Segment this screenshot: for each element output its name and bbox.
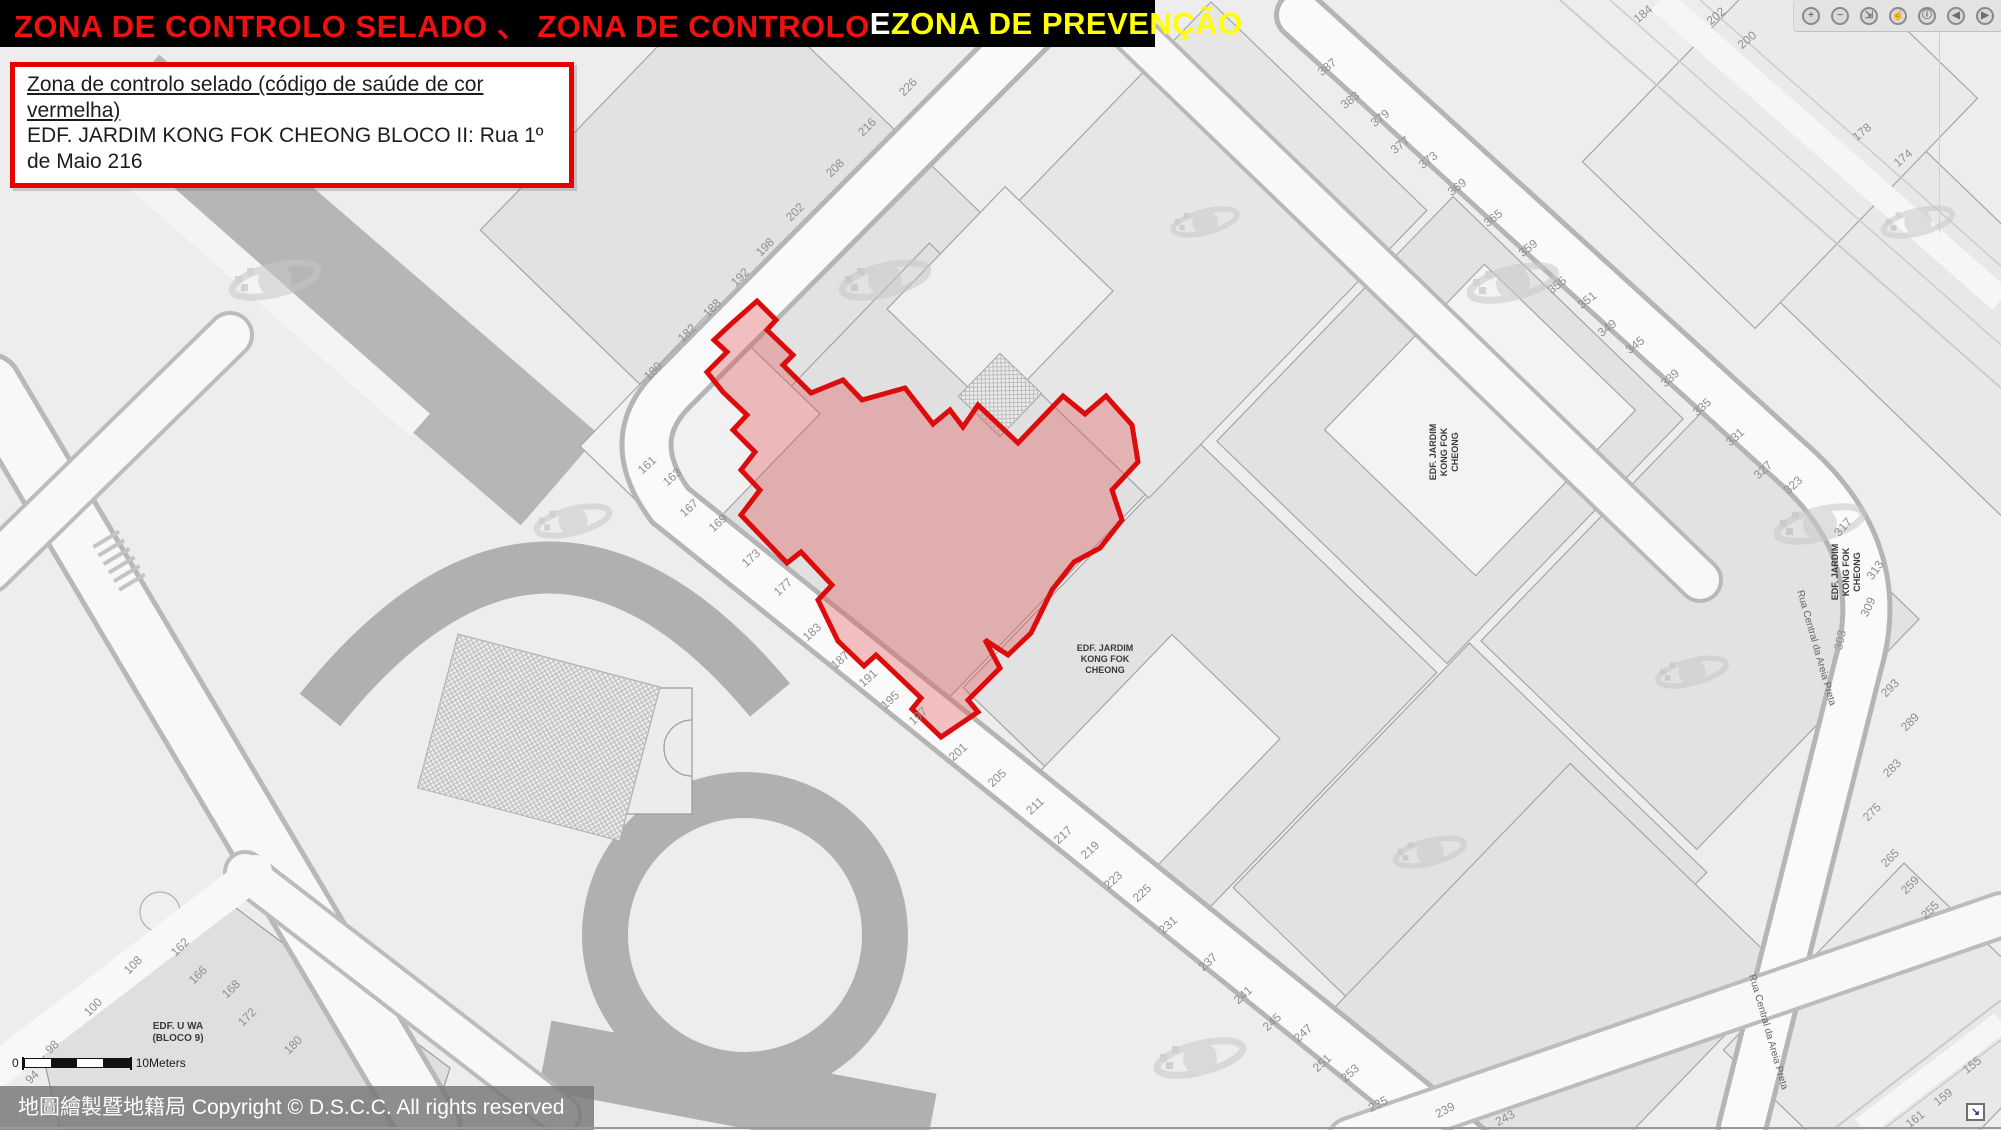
copyright-bar: 地圖繪製暨地籍局 Copyright © D.S.C.C. All rights… [0, 1086, 594, 1130]
map-sheet-boundary [1939, 33, 1940, 233]
copyright-text: 地圖繪製暨地籍局 Copyright © D.S.C.C. All rights… [18, 1096, 564, 1119]
banner-text-segment: E [870, 6, 891, 42]
scale-bar-segments [24, 1058, 130, 1068]
legend-title: Zona de controlo selado (código de saúde… [27, 73, 483, 122]
map-toolbar: +−⇲☝ⓘ◀▶ [1793, 0, 2001, 32]
forward-button[interactable]: ▶ [1976, 7, 1994, 25]
banner-text-segment: ZONA DE CONTROLO SELADO 、 ZONA DE CONTRO… [14, 1, 870, 46]
banner-text-segment: ZONA DE PREVENÇÃO [891, 6, 1243, 42]
scale-units-label: 10Meters [136, 1056, 186, 1070]
scale-zero-label: 0 [12, 1056, 19, 1070]
scale-segment [25, 1059, 51, 1067]
scale-segment [77, 1059, 103, 1067]
zoom-in-button[interactable]: + [1802, 7, 1820, 25]
map-frame-bottom [0, 1127, 2001, 1129]
pan-button[interactable]: ☝ [1889, 7, 1907, 25]
back-button[interactable]: ◀ [1947, 7, 1965, 25]
zone-title-banner: ZONA DE CONTROLO SELADO 、 ZONA DE CONTRO… [0, 0, 1155, 47]
identify-button[interactable]: ⓘ [1918, 7, 1936, 25]
full-extent-button[interactable]: ⇲ [1860, 7, 1878, 25]
scale-tick [130, 1057, 132, 1070]
zoom-out-button[interactable]: − [1831, 7, 1849, 25]
map-viewer: 2262162082021981921881821801611631671691… [0, 0, 2001, 1130]
legend-body: EDF. JARDIM KONG FOK CHEONG BLOCO II: Ru… [27, 124, 543, 173]
expand-corner-icon[interactable]: ↘ [1966, 1103, 1985, 1121]
legend-box: Zona de controlo selado (código de saúde… [10, 62, 574, 188]
scale-segment [51, 1059, 77, 1067]
scale-bar: 0 10Meters [12, 1056, 186, 1070]
scale-segment [103, 1059, 129, 1067]
